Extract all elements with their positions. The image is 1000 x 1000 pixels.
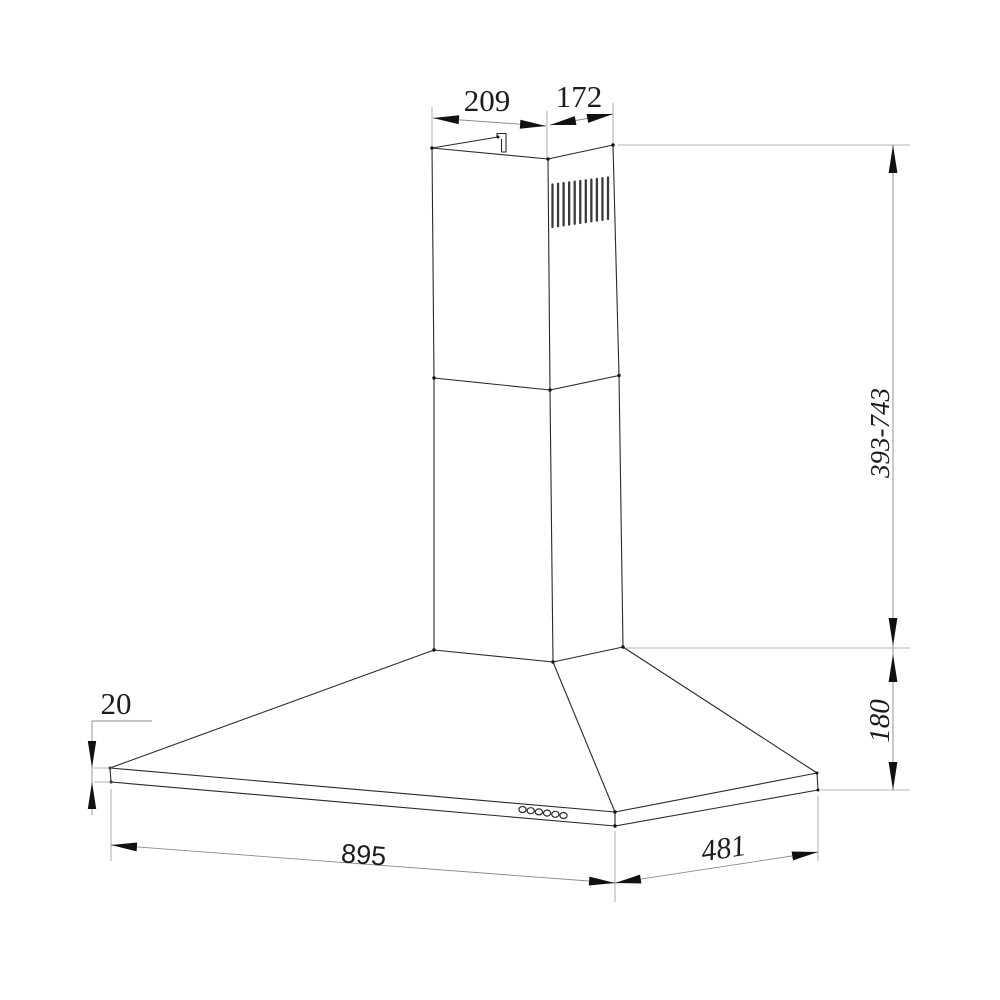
arrowhead-right [589,877,615,886]
pyramid-top-edges [434,647,623,662]
control-buttons [519,807,567,819]
pyramid-front-slant-edge [553,662,615,812]
dimension-hood-depth: 481 [615,796,818,884]
control-button [535,809,542,815]
drawing-canvas: 209 172 393-743 180 20 [0,0,1000,1000]
control-button [527,808,534,814]
arrowhead-top [889,145,898,173]
chimney-lower-section [434,376,623,663]
dimension-hood-body-height: 180 [821,654,910,790]
range-hood-technical-drawing: 209 172 393-743 180 20 [0,0,1000,1000]
chimney-upper-left-edge [432,148,434,378]
vent-grille [553,178,609,228]
rim-top-edges [110,768,817,812]
chimney-lower-front-edge [550,390,553,662]
vertex-markers [109,136,820,828]
chimney-upper-section [432,134,619,391]
dim-label-209: 209 [464,83,511,118]
pyramid-left-slant-edge [110,650,434,768]
chimney-upper-front-edge [548,159,550,390]
dimension-chimney-top-width: 209 [432,83,547,157]
arrowhead-right [792,852,818,861]
dim-label-895: 895 [340,838,387,871]
chimney-lower-right-edge [619,376,623,648]
arrowhead-left [550,116,576,125]
control-button [519,807,526,813]
arrowhead-bottom [88,782,96,809]
chimney-joint-line [434,376,619,391]
dim-label-481: 481 [699,829,748,868]
rim-right-end-edge [817,773,818,790]
rim-bottom-edges [111,782,818,826]
control-button [544,810,551,816]
arrowhead-bottom [889,762,898,790]
dimension-rim-height: 20 [88,686,152,815]
dim-label-393-743: 393-743 [865,388,895,479]
chimney-upper-right-edge [613,145,619,376]
arrowhead-right [520,120,546,129]
arrowhead-top [889,654,898,682]
arrowhead-right [587,114,613,123]
dim-label-20: 20 [101,686,132,721]
dim-label-172: 172 [556,79,603,114]
dimension-chimney-top-depth: 172 [550,79,613,143]
rim-left-end-edge [110,768,111,782]
dim-label-180: 180 [864,699,896,743]
chimney-top-back-edge [432,137,498,148]
chimney-top-front-edges [432,145,613,159]
control-button [560,813,567,819]
arrowhead-top [88,741,96,768]
dimension-chimney-height-range: 393-743 [618,145,910,790]
arrowhead-left [111,843,137,852]
pyramid-right-slant-edge [623,647,817,773]
arrowhead-left [615,875,641,884]
hood-body [110,647,818,826]
arrowhead-left [433,115,459,124]
arrowhead-bottom [889,618,898,646]
control-button [552,811,559,817]
